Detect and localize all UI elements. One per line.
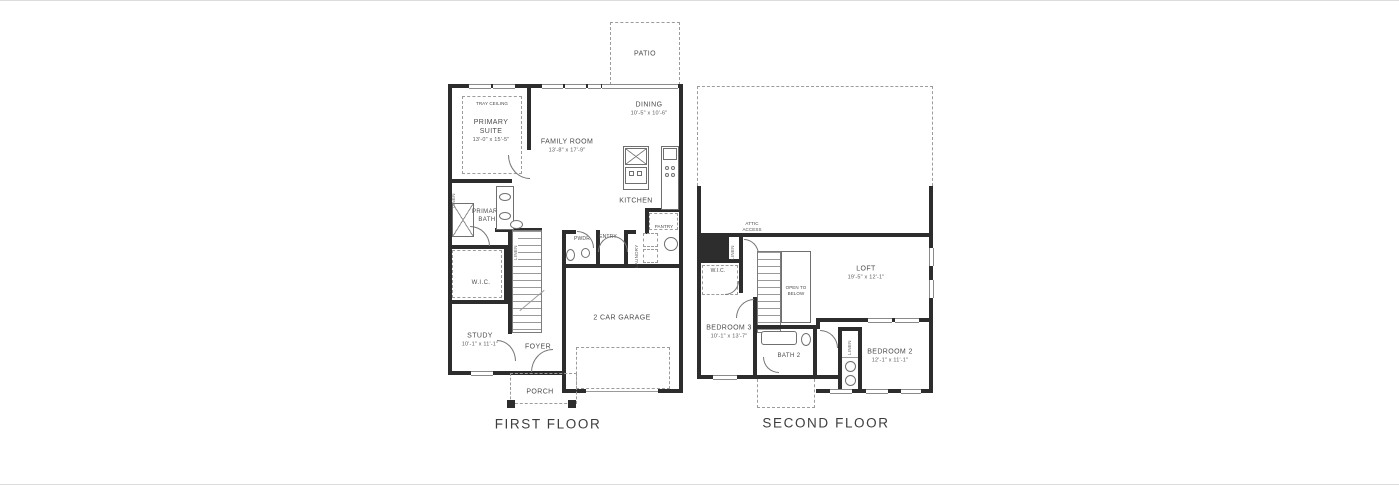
- window: [929, 280, 934, 298]
- primary-suite-label: PRIMARY SUITE 13'-0" x 15'-5": [467, 118, 515, 144]
- bath2-label: BATH 2: [778, 353, 801, 361]
- burner-icon: [629, 171, 634, 176]
- water-heater-icon: [664, 237, 678, 251]
- washer-icon: [643, 233, 658, 247]
- shelf-line: [842, 357, 858, 358]
- window: [929, 248, 934, 266]
- loft-label: LOFT 19'-5" x 12'-1": [848, 264, 885, 281]
- pantry-label: PANTRY: [655, 224, 673, 230]
- window: [469, 84, 491, 89]
- porch-post: [507, 400, 515, 408]
- attic-access-label: ATTIC ACCESS: [741, 221, 763, 233]
- dining-label: DINING 10'-5" x 10'-6": [631, 100, 668, 117]
- wall: [562, 230, 576, 234]
- bathtub-icon: [761, 331, 797, 345]
- wic-shelves: [452, 250, 502, 298]
- window: [901, 389, 921, 394]
- bedroom3-label: BEDROOM 3 10'-1" x 13'-7": [706, 323, 752, 340]
- wall: [679, 84, 683, 393]
- tray-ceiling-label: TRAY CEILING: [476, 101, 508, 107]
- image-top-border: [0, 0, 1399, 1]
- patio-label: PATIO: [634, 49, 656, 58]
- window: [895, 318, 919, 323]
- bedroom3-dims: 10'-1" x 13'-7": [706, 333, 752, 340]
- wall: [699, 259, 743, 263]
- window: [713, 375, 737, 380]
- burner-icon: [637, 171, 642, 176]
- linen-label: LINEN: [730, 240, 735, 260]
- door-arc: [577, 231, 594, 248]
- door-arc: [470, 226, 490, 246]
- sink-icon: [499, 212, 511, 220]
- garage-label: 2 CAR GARAGE: [593, 313, 650, 322]
- wall: [929, 233, 933, 322]
- door-arc: [820, 330, 838, 348]
- chase-fill: [699, 237, 725, 261]
- loft-dims: 19'-5" x 12'-1": [848, 274, 885, 281]
- garage-opening-line: [586, 391, 658, 392]
- window: [565, 84, 586, 89]
- wall: [562, 230, 566, 268]
- sink-icon: [845, 361, 856, 372]
- wall: [697, 186, 701, 233]
- porch-label: PORCH: [524, 387, 555, 396]
- cooktop-knob-icon: [665, 166, 669, 170]
- toilet-icon: [801, 333, 811, 346]
- bedroom2-name: BEDROOM 2: [867, 348, 913, 355]
- wic-label: W.I.C.: [711, 268, 726, 275]
- second-floor-caption: SECOND FLOOR: [762, 416, 889, 431]
- dining-name: DINING: [636, 101, 663, 108]
- bedroom2-label: BEDROOM 2 12'-1" x 11'-1": [867, 347, 913, 364]
- patio-sliding-door: [602, 84, 678, 89]
- window: [471, 371, 493, 376]
- wall: [858, 327, 862, 391]
- sink-icon: [499, 193, 511, 201]
- toilet-icon: [566, 249, 575, 261]
- wall: [838, 327, 842, 391]
- wall: [753, 325, 817, 329]
- family-room-dims: 13'-8" x 17'-9": [541, 147, 593, 154]
- family-room-name: FAMILY ROOM: [541, 138, 593, 145]
- bedroom3-name: BEDROOM 3: [706, 324, 752, 331]
- wall: [813, 325, 817, 379]
- door-arc: [763, 357, 779, 373]
- laundry-label: LAUNDRY: [634, 238, 639, 268]
- wall: [739, 237, 743, 261]
- linen-label: LINEN: [847, 333, 852, 355]
- window: [830, 389, 852, 394]
- porch-post: [568, 400, 576, 408]
- door-arc: [508, 155, 530, 179]
- cooktop-knob-icon: [671, 166, 675, 170]
- study-dims: 10'-1" x 11'-1": [462, 341, 498, 348]
- stairs: [757, 251, 781, 333]
- garage-door-outline: [576, 347, 670, 389]
- dryer-icon: [643, 249, 658, 263]
- wall: [448, 300, 508, 304]
- first-floor-caption: FIRST FLOOR: [495, 417, 602, 432]
- fridge-icon: [663, 148, 677, 160]
- window: [542, 84, 563, 89]
- primary-suite-dims: 13'-0" x 15'-5": [467, 137, 515, 144]
- wall: [562, 264, 683, 268]
- wall: [624, 230, 636, 234]
- front-door-arc: [531, 349, 553, 372]
- dining-dims: 10'-5" x 10'-6": [631, 110, 668, 117]
- cooktop-knob-icon: [671, 173, 675, 177]
- wall: [697, 233, 933, 237]
- wall: [929, 186, 933, 233]
- linen-label: LINEN: [513, 234, 518, 260]
- wic-label: W.I.C.: [472, 280, 491, 288]
- open-to-below-label: OPEN TO BELOW: [784, 285, 808, 297]
- door-arc: [497, 340, 516, 361]
- primary-suite-name: PRIMARY SUITE: [474, 119, 509, 135]
- wall: [527, 84, 531, 150]
- wall: [448, 179, 512, 183]
- study-name: STUDY: [467, 332, 493, 339]
- roof-outline: [697, 86, 933, 186]
- wall: [929, 318, 933, 393]
- cooktop-knob-icon: [665, 173, 669, 177]
- window: [866, 389, 888, 394]
- family-room-label: FAMILY ROOM 13'-8" x 17'-9": [541, 137, 593, 154]
- study-label: STUDY 10'-1" x 11'-1": [462, 331, 498, 348]
- window: [868, 318, 892, 323]
- bedroom2-dims: 12'-1" x 11'-1": [867, 357, 913, 364]
- lower-roof-outline: [757, 379, 815, 408]
- sink-icon: [845, 375, 856, 386]
- door-arc: [736, 299, 754, 318]
- kitchen-sink-icon: [625, 148, 647, 165]
- window: [493, 84, 515, 89]
- wall: [739, 261, 743, 293]
- floor-plan-canvas: PATIO TRAY CEILIN: [0, 0, 1399, 485]
- loft-name: LOFT: [856, 265, 876, 272]
- toilet-icon: [510, 220, 523, 229]
- kitchen-label: KITCHEN: [619, 196, 653, 205]
- pedestal-sink-icon: [581, 248, 590, 258]
- window: [588, 84, 601, 89]
- wall: [725, 237, 729, 261]
- wall: [816, 318, 820, 329]
